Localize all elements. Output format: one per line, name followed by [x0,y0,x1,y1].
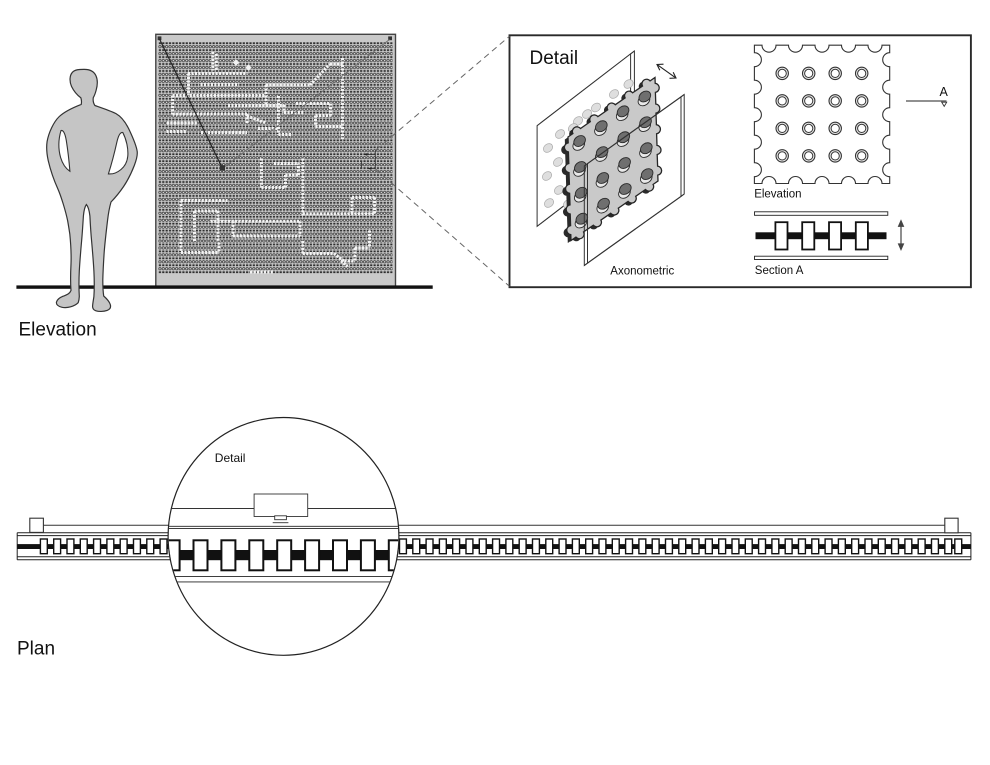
svg-text:Elevation: Elevation [19,320,97,341]
svg-text:Plan: Plan [17,639,55,660]
svg-text:Detail: Detail [530,48,579,69]
svg-text:Elevation: Elevation [754,189,801,201]
svg-text:Detail: Detail [215,451,246,465]
svg-text:Section A: Section A [755,265,804,277]
svg-text:A: A [940,85,949,99]
svg-text:Axonometric: Axonometric [610,266,674,278]
